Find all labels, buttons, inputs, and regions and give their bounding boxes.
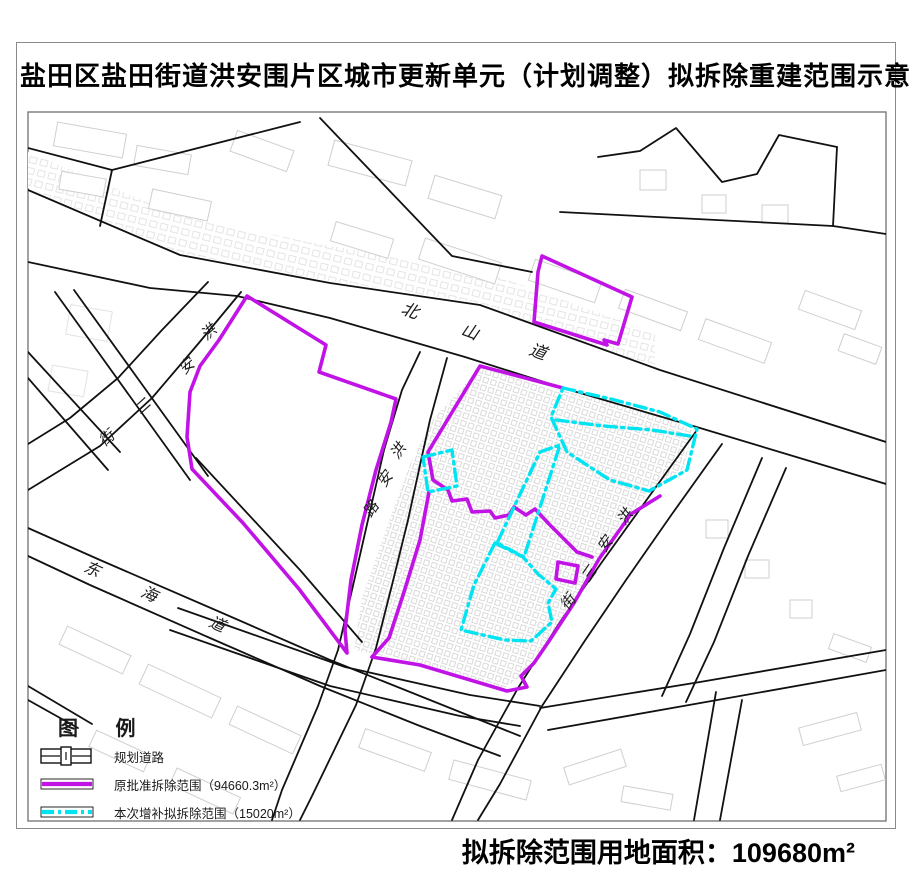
- legend-label-original-boundary: 原批准拆除范围（94660.3m²）: [114, 775, 286, 794]
- supplementary-boundary-icon: [40, 802, 94, 822]
- legend-item-planned-road: 规划道路: [40, 743, 370, 769]
- legend-label-supplementary-boundary: 本次增补拟拆除范围（15020m²）: [114, 803, 301, 822]
- legend-label-planned-road: 规划道路: [114, 747, 164, 766]
- planned-road-icon: [40, 746, 94, 766]
- legend-title: 图 例: [58, 712, 370, 741]
- legend: 图 例 规划道路 原批准拆除范围（94660.3m²） 本次: [40, 712, 370, 825]
- legend-item-original-boundary: 原批准拆除范围（94660.3m²）: [40, 771, 370, 797]
- legend-item-supplementary-boundary: 本次增补拟拆除范围（15020m²）: [40, 799, 370, 825]
- schematic-page: 盐田区盐田街道洪安围片区城市更新单元（计划调整）拟拆除重建范围示意图: [0, 0, 911, 876]
- original-boundary-icon: [40, 774, 94, 794]
- total-area-caption: 拟拆除范围用地面积：109680m²: [0, 831, 855, 870]
